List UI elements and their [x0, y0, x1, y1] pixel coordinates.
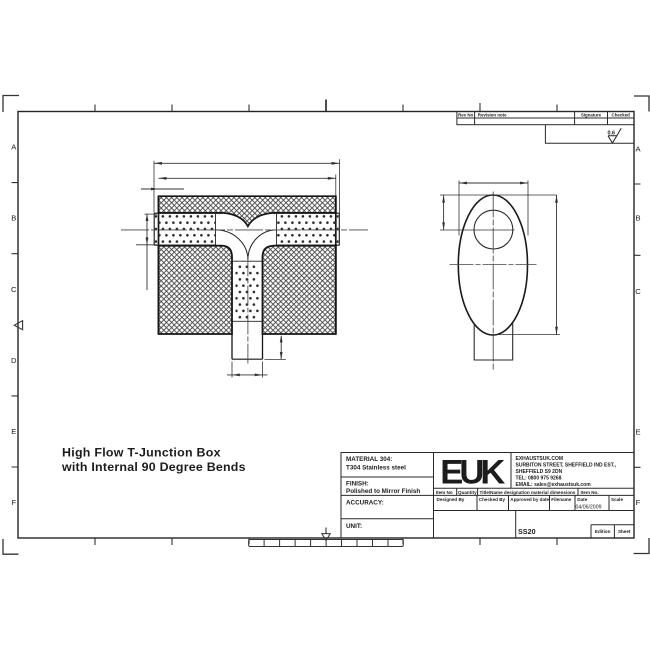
svg-text:C: C — [11, 285, 17, 294]
svg-text:Revision note: Revision note — [478, 112, 507, 117]
svg-text:EXHAUSTSUK.COM: EXHAUSTSUK.COM — [516, 456, 564, 462]
svg-text:Edition: Edition — [595, 529, 611, 534]
svg-text:ACCURACY:: ACCURACY: — [346, 500, 384, 507]
svg-text:F: F — [636, 498, 641, 507]
svg-text:SS20: SS20 — [518, 527, 536, 536]
svg-text:EMAIL: sales@exhaustsuk.com: EMAIL: sales@exhaustsuk.com — [516, 482, 592, 488]
svg-text:E: E — [635, 428, 640, 437]
svg-text:EUK: EUK — [440, 453, 505, 491]
svg-text:Scale: Scale — [611, 497, 623, 502]
svg-text:E: E — [11, 427, 16, 436]
svg-text:04/06/2009: 04/06/2009 — [576, 505, 602, 511]
svg-text:SHEFFIELD S9 2DN: SHEFFIELD S9 2DN — [516, 469, 563, 475]
svg-text:B: B — [11, 214, 16, 223]
svg-text:SURBITON STREET, SHEFFIELD IND: SURBITON STREET, SHEFFIELD IND EST., — [516, 463, 617, 469]
svg-text:T304 Stainless steel: T304 Stainless steel — [346, 464, 406, 471]
svg-text:Designed By: Designed By — [437, 497, 465, 502]
svg-text:F: F — [11, 498, 16, 507]
svg-text:Rev No: Rev No — [458, 112, 473, 117]
svg-text:UNIT:: UNIT: — [346, 523, 362, 530]
svg-text:D: D — [11, 356, 17, 365]
svg-text:Filename: Filename — [551, 497, 571, 502]
svg-text:Date: Date — [577, 497, 587, 502]
svg-text:MATERIAL 304:: MATERIAL 304: — [346, 456, 392, 463]
svg-text:Checked: Checked — [612, 112, 631, 117]
svg-text:Sheet: Sheet — [618, 529, 631, 534]
svg-text:Checked By: Checked By — [479, 497, 506, 502]
svg-text:FINISH:: FINISH: — [346, 481, 369, 488]
svg-text:Item No.: Item No. — [581, 490, 599, 495]
svg-text:Quantity: Quantity — [458, 490, 477, 495]
svg-text:C: C — [635, 287, 641, 296]
svg-text:B: B — [635, 214, 640, 223]
svg-text:0.6: 0.6 — [608, 130, 616, 136]
svg-text:Item No: Item No — [436, 490, 453, 495]
svg-text:TEL: 0800 975 9268: TEL: 0800 975 9268 — [516, 475, 562, 481]
svg-text:High Flow T-Junction Box: High Flow T-Junction Box — [62, 446, 221, 460]
svg-text:Title/Name designation materia: Title/Name designation material dimensio… — [480, 490, 576, 495]
svg-text:Signature: Signature — [581, 112, 602, 117]
svg-text:Polished to Mirror Finish: Polished to Mirror Finish — [346, 488, 420, 495]
svg-text:with Internal 90 Degree Bends: with Internal 90 Degree Bends — [61, 460, 246, 474]
svg-text:Approved by date: Approved by date — [510, 497, 549, 502]
